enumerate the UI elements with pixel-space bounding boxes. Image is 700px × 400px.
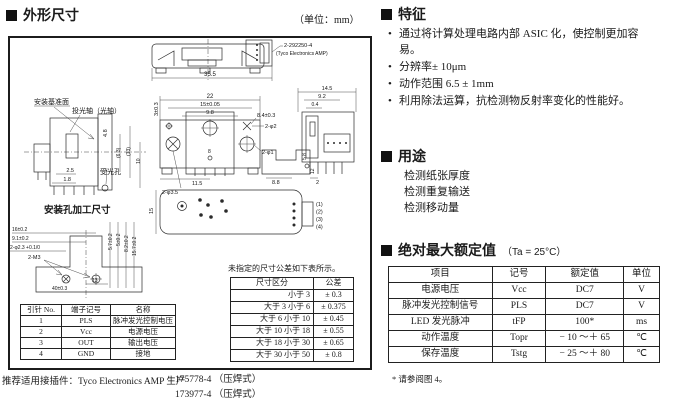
ratings-title: 绝对最大额定值 (398, 240, 496, 260)
ratings-col-header: 记号 (492, 267, 546, 283)
table-row: 小于 3± 0.3 (231, 290, 354, 302)
pin-name: 输出电压 (111, 338, 176, 349)
dim-2: 2 (316, 180, 319, 186)
list-item: •通过将计算处理电路内部 ASIC 化，使控制更加容易。 (388, 26, 642, 58)
table-row: 动作温度 Topr − 10 ～＋ 65 ℃ (389, 331, 660, 347)
ratings-col-header: 单位 (624, 267, 660, 283)
mounting-hole-drawing: 安装孔加工尺寸 16±0.2 9.1±0.2 2-φ2.3 +0.1/0 2-M… (10, 204, 142, 298)
rating-value: − 10 ～＋ 65 (546, 331, 624, 347)
connector-part-number: 173977-4 （压焊式） (175, 386, 261, 400)
rating-item: 保存温度 (389, 347, 493, 363)
dim-2phi1: 2-φ1 (262, 150, 274, 156)
dim-9-2: 9.2 (318, 94, 326, 100)
pin-symbol: PLS (62, 316, 111, 327)
pin-table: 引针 No. 端子记号 名称 1 PLS 脉冲发光控制电压 2 Vcc 电源电压… (20, 304, 176, 360)
ratings-col-header: 项目 (389, 267, 493, 283)
dim-5-8: 5.8 (302, 153, 308, 160)
pin-no: 2 (21, 327, 62, 338)
size-range: 大于 3 小于 6 (231, 302, 314, 314)
dim-22: 22 (207, 94, 214, 100)
connector-callout-maker: (Tyco Electronics AMP) (276, 51, 328, 57)
table-row: 大于 18 小于 30± 0.65 (231, 338, 354, 350)
pin-no: 3 (21, 338, 62, 349)
pin-symbol: Vcc (62, 327, 111, 338)
pin-table-header-row: 引针 No. 端子记号 名称 (21, 305, 176, 316)
connector-callout-part: 2-292250-4 (284, 43, 312, 49)
table-row: 3 OUT 输出电压 (21, 338, 176, 349)
rating-value: DC7 (546, 283, 624, 299)
light-axis-label: 投光轴（光轴） (72, 106, 121, 115)
rating-symbol: Tstg (492, 347, 546, 363)
bottom-view: (1) (2) (3) (4) 15 (149, 190, 323, 234)
features-title: 特征 (398, 4, 426, 24)
rating-symbol: PLS (492, 299, 546, 315)
dim-15: 15±0.05 (200, 102, 220, 108)
dim-2phi23: 2-φ2.3 +0.1/0 (10, 245, 40, 251)
ratings-header: 绝对最大额定值 （Ta = 25°C） (381, 240, 566, 260)
front-view: 22 15±0.05 9.8 8 8.4±0.3 (154, 94, 277, 196)
ratings-header-row: 项目 记号 额定值 单位 (389, 267, 660, 283)
dim-9-8: 9.8 (206, 110, 214, 116)
size-range: 大于 30 小于 50 (231, 350, 314, 362)
pin-name: 电源电压 (111, 327, 176, 338)
pin-name: 接地 (111, 349, 176, 360)
table-row: 大于 6 小于 10± 0.45 (231, 314, 354, 326)
dim-15-7: 15.7±0.2 (132, 236, 138, 256)
tolerance-value: ± 0.375 (314, 302, 354, 314)
side-view-left: 安装基准面 投光轴（光轴） 4.8 2.5 1.8 (24, 97, 146, 195)
tolerance-value: ± 0.65 (314, 338, 354, 350)
rating-symbol: Vcc (492, 283, 546, 299)
table-row: 1 PLS 脉冲发光控制电压 (21, 316, 176, 327)
rating-item: LED 发光脉冲 (389, 315, 493, 331)
bullet-icon: • (388, 26, 392, 42)
tolerance-header: 公差 (314, 278, 354, 290)
connector-part-number: 175778-4 （压焊式） (175, 371, 261, 385)
dim-6-3: (6.3) (116, 147, 122, 158)
unit-note: （单位：mm） (294, 11, 360, 26)
pin-callout-1: (1) (316, 202, 323, 208)
list-item: •利用除法运算，抗检测物反射率变化的性能好。 (388, 93, 642, 109)
dim-16-02: 16±0.2 (12, 227, 27, 233)
rating-value: − 25 ～＋ 80 (546, 347, 624, 363)
dim-2m3: 2-M3 (28, 255, 41, 261)
pin-callout-2: (2) (316, 210, 323, 216)
dim-14-5: 14.5 (322, 86, 333, 92)
rating-unit: V (624, 283, 660, 299)
section-marker-icon (381, 151, 392, 162)
datasheet-page: 外形尺寸 （单位：mm） 35.5 2-292250-4 (Tyco (0, 0, 700, 400)
ratings-condition: （Ta = 25°C） (502, 243, 566, 258)
table-row: 脉冲发光控制信号 PLS DC7 V (389, 299, 660, 315)
section-marker-icon (381, 245, 392, 256)
dim-8-8: 8.8 (272, 180, 280, 186)
ratings-table: 项目 记号 额定值 单位 电源电压 Vcc DC7 V 脉冲发光控制信号 PLS… (388, 266, 660, 363)
dim-8-4: 8.4±0.3 (257, 113, 275, 119)
size-range: 大于 6 小于 10 (231, 314, 314, 326)
pin-symbol: OUT (62, 338, 111, 349)
pin-table-header: 端子记号 (62, 305, 111, 316)
section-marker-icon (6, 10, 17, 21)
tolerance-value: ± 0.3 (314, 290, 354, 302)
dim-11-5: 11.5 (192, 181, 202, 187)
list-item: 检测纸张厚度 (404, 168, 470, 184)
section-marker-icon (381, 9, 392, 20)
feature-text: 分辨率± 10μm (399, 61, 466, 73)
dim-3-03: 3±0.3 (154, 102, 160, 116)
applications-title: 用途 (398, 146, 426, 166)
dim-5: 5±0.2 (116, 233, 122, 246)
pin-name: 脉冲发光控制电压 (111, 316, 176, 327)
rating-unit: ℃ (624, 347, 660, 363)
dim-8: 8 (208, 149, 211, 155)
list-item: 检测移动量 (404, 200, 470, 216)
pin-callout-4: (4) (316, 225, 323, 231)
rating-unit: V (624, 299, 660, 315)
rating-unit: ℃ (624, 331, 660, 347)
dim-4-8: 4.8 (103, 129, 109, 137)
pin-symbol: GND (62, 349, 111, 360)
dim-13p: (13) (126, 147, 132, 156)
dim-40-03: 40±0.3 (52, 286, 67, 292)
dim-2-5: 2.5 (66, 168, 74, 174)
recommended-connector-note: 推荐适用接插件：Tyco Electronics AMP 生产 (2, 373, 185, 387)
bullet-icon: • (388, 76, 392, 92)
bullet-icon: • (388, 59, 392, 75)
features-header: 特征 (381, 4, 426, 24)
rating-value: DC7 (546, 299, 624, 315)
pin-no: 1 (21, 316, 62, 327)
top-view: 35.5 2-292250-4 (Tyco Electronics AMP) (152, 39, 328, 81)
dim-0-4: 0.4 (312, 102, 319, 108)
list-item: 检测重复输送 (404, 184, 470, 200)
table-row: 大于 30 小于 50± 0.8 (231, 350, 354, 362)
feature-text: 利用除法运算，抗检测物反射率变化的性能好。 (399, 95, 630, 107)
mounting-ref-label: 安装基准面 (34, 97, 69, 106)
dim-13: 13 (92, 278, 98, 284)
tolerance-header: 尺寸区分 (231, 278, 314, 290)
tolerance-value: ± 0.45 (314, 314, 354, 326)
dim-12: 12 (310, 168, 316, 174)
rating-value: 100* (546, 315, 624, 331)
dim-8-2: 8.2±0.2 (124, 235, 130, 252)
pin-no: 4 (21, 349, 62, 360)
tolerance-value: ± 0.55 (314, 326, 354, 338)
dim-10: 10 (136, 158, 142, 164)
list-item: •动作范围 6.5 ± 1mm (388, 76, 642, 92)
applications-header: 用途 (381, 146, 426, 166)
side-view-right: 14.5 9.2 0.4 2 (298, 86, 356, 186)
tolerance-note: 未指定的尺寸公差如下表所示。 (228, 263, 340, 274)
rating-symbol: Topr (492, 331, 546, 347)
rating-unit: ms (624, 315, 660, 331)
dim-15-h: 15 (149, 208, 155, 214)
tolerance-header-row: 尺寸区分 公差 (231, 278, 354, 290)
rating-item: 脉冲发光控制信号 (389, 299, 493, 315)
pin-table-header: 名称 (111, 305, 176, 316)
table-row: 大于 10 小于 18± 0.55 (231, 326, 354, 338)
applications-list: 检测纸张厚度 检测重复输送 检测移动量 (404, 168, 470, 216)
table-row: 保存温度 Tstg − 25 ～＋ 80 ℃ (389, 347, 660, 363)
size-range: 大于 18 小于 30 (231, 338, 314, 350)
table-row: LED 发光脉冲 tFP 100* ms (389, 315, 660, 331)
table-row: 2 Vcc 电源电压 (21, 327, 176, 338)
ratings-col-header: 额定值 (546, 267, 624, 283)
outline-dimensions-header: 外形尺寸 (6, 5, 79, 25)
outline-drawing-box: 35.5 2-292250-4 (Tyco Electronics AMP) 安… (8, 36, 372, 370)
bullet-icon: • (388, 93, 392, 109)
mounting-holes-title: 安装孔加工尺寸 (44, 204, 111, 216)
outline-dimensions-title: 外形尺寸 (23, 5, 79, 25)
receive-hole-label: 受光孔 (100, 167, 121, 176)
tolerance-value: ± 0.8 (314, 350, 354, 362)
rating-item: 动作温度 (389, 331, 493, 347)
rating-item: 电源电压 (389, 283, 493, 299)
ratings-footnote: * 请参阅图 4。 (392, 373, 447, 385)
tolerance-table: 尺寸区分 公差 小于 3± 0.3 大于 3 小于 6± 0.375 大于 6 … (230, 277, 354, 362)
features-list: •通过将计算处理电路内部 ASIC 化，使控制更加容易。 •分辨率± 10μm … (388, 26, 642, 110)
size-range: 大于 10 小于 18 (231, 326, 314, 338)
table-row: 4 GND 接地 (21, 349, 176, 360)
pin-table-header: 引针 No. (21, 305, 62, 316)
feature-text: 动作范围 6.5 ± 1mm (399, 78, 494, 90)
table-row: 电源电压 Vcc DC7 V (389, 283, 660, 299)
table-row: 大于 3 小于 6± 0.375 (231, 302, 354, 314)
dim-5-7: 5.7±0.2 (108, 233, 114, 250)
dim-9-1: 9.1±0.2 (12, 236, 29, 242)
dim-1-8: 1.8 (63, 177, 71, 183)
dim-2phi2: 2-φ2 (265, 124, 277, 130)
list-item: •分辨率± 10μm (388, 59, 642, 75)
dim-35-5: 35.5 (204, 72, 216, 78)
rating-symbol: tFP (492, 315, 546, 331)
pin-callout-3: (3) (316, 217, 323, 223)
size-range: 小于 3 (231, 290, 314, 302)
feature-text: 通过将计算处理电路内部 ASIC 化，使控制更加容易。 (399, 28, 639, 56)
